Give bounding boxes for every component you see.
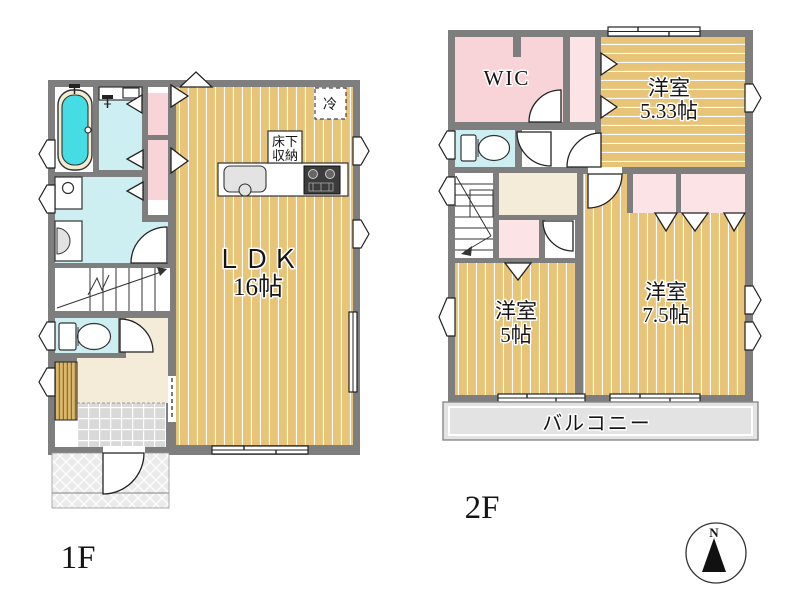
wic-label: WIC bbox=[484, 66, 531, 90]
refrigerator-box: 冷 bbox=[315, 88, 346, 119]
window-icon bbox=[39, 322, 55, 350]
toilet-icon-1f bbox=[59, 323, 111, 350]
entry-side-strip bbox=[55, 420, 77, 447]
closet-75-a bbox=[633, 174, 676, 213]
closet-wall bbox=[627, 174, 633, 213]
burner-icon bbox=[326, 170, 335, 179]
window-icon bbox=[439, 298, 455, 336]
ldk-label: ＬＤＫ bbox=[216, 245, 300, 274]
tall-window-icon bbox=[349, 312, 357, 392]
window-icon bbox=[39, 185, 55, 213]
room533-size-label: 5.33帖 bbox=[640, 99, 698, 123]
underfloor-storage-label-2: 収納 bbox=[272, 148, 298, 163]
bathtub-icon bbox=[58, 84, 92, 170]
closet-1f-b bbox=[148, 140, 168, 200]
closet-gap bbox=[148, 87, 168, 93]
washbasin-icon bbox=[55, 177, 82, 209]
room533-label: 洋室 bbox=[648, 76, 690, 100]
vent-triangle-icon bbox=[180, 72, 212, 87]
burner-icon bbox=[309, 170, 318, 179]
sink-drain-icon bbox=[239, 184, 251, 196]
floor-2f-label: 2F bbox=[465, 490, 500, 526]
window-icon bbox=[745, 84, 761, 112]
vanity-icon bbox=[55, 221, 82, 261]
floor-plan-drawing: 床下 収納 冷 bbox=[0, 0, 800, 600]
sliding-window-icon bbox=[498, 394, 585, 402]
closet-75-b bbox=[681, 174, 745, 213]
floor-plan-page: 床下 収納 冷 bbox=[0, 0, 800, 600]
window-icon bbox=[745, 322, 761, 350]
window-icon bbox=[39, 368, 55, 396]
room75-label: 洋室 bbox=[645, 280, 687, 304]
room5-label: 洋室 bbox=[495, 299, 537, 323]
room75-size-label: 7.5帖 bbox=[642, 303, 689, 327]
compass-icon: N bbox=[686, 523, 746, 583]
kitchen-counter bbox=[218, 163, 348, 196]
closet-wall bbox=[676, 174, 681, 213]
toilet-icon-2f bbox=[461, 135, 510, 161]
closet-2f-hall bbox=[499, 220, 539, 258]
sliding-window-icon bbox=[610, 394, 700, 402]
underfloor-storage-box: 床下 収納 bbox=[268, 131, 302, 163]
floor-2f: バルコニー WIC 洋室 5.33帖 洋室 5帖 洋室 7.5帖 2F bbox=[439, 27, 761, 526]
floor-1f-label: 1F bbox=[61, 540, 96, 576]
window-icon bbox=[39, 140, 55, 168]
window-icon bbox=[353, 137, 369, 165]
floor-1f: 床下 収納 冷 bbox=[39, 72, 369, 576]
window-icon bbox=[353, 220, 369, 248]
faucet-icon bbox=[102, 95, 113, 99]
doorway-gap-75 bbox=[588, 167, 622, 174]
sliding-window-icon bbox=[608, 27, 700, 36]
window-icon bbox=[745, 286, 761, 314]
room5-size-label: 5帖 bbox=[500, 323, 532, 347]
sliding-window-icon bbox=[212, 446, 308, 454]
closet-1f-a bbox=[148, 93, 168, 135]
stairs-2f bbox=[455, 173, 493, 258]
room-hall-1f-west bbox=[77, 358, 126, 403]
compass-north-label: N bbox=[709, 525, 719, 540]
genkan-tile-floor bbox=[77, 403, 166, 447]
shoe-cabinet bbox=[55, 362, 77, 420]
balcony: バルコニー bbox=[443, 402, 758, 440]
sliding-door-ldk bbox=[168, 376, 176, 422]
wic-wall-stub bbox=[513, 37, 521, 57]
window-icon bbox=[439, 177, 455, 205]
laundry-sink-icon bbox=[123, 88, 139, 98]
closet-1f-b-lower bbox=[148, 200, 168, 215]
balcony-label: バルコニー bbox=[542, 413, 652, 435]
hallway-2f bbox=[499, 173, 577, 215]
underfloor-storage-label-1: 床下 bbox=[272, 134, 298, 149]
window-icon bbox=[439, 131, 455, 159]
refrigerator-label: 冷 bbox=[323, 97, 337, 113]
ldk-size-label: 16帖 bbox=[233, 273, 283, 301]
closet-2f-north bbox=[570, 37, 595, 122]
